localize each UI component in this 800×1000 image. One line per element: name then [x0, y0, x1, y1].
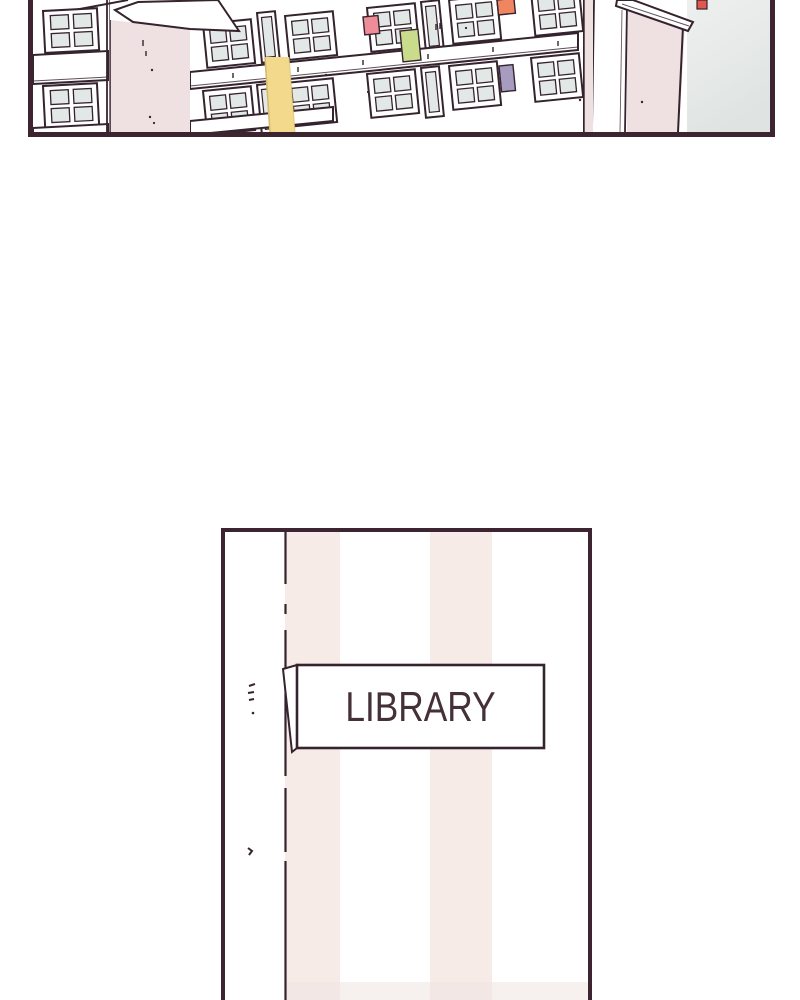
building-main-facade [190, 0, 583, 132]
door-background [225, 532, 588, 1000]
red-window [363, 16, 380, 35]
orange-window [497, 0, 515, 15]
door-stripe [285, 532, 340, 1000]
gable-wall [110, 20, 190, 132]
red-accent [697, 0, 707, 9]
panel-school-exterior [28, 0, 775, 137]
green-window [400, 29, 421, 62]
purple-window [499, 65, 516, 92]
door-bottom-shadow [285, 982, 588, 1000]
library-door-illustration [225, 532, 588, 1000]
comic-strip-page: LIBRARY [0, 0, 800, 1000]
panel-library-door: LIBRARY [221, 528, 592, 1000]
building-corner-column [590, 0, 627, 132]
school-building-illustration [33, 0, 770, 132]
door-stripe [430, 532, 492, 1000]
sky [687, 0, 770, 132]
library-sign [283, 665, 544, 752]
